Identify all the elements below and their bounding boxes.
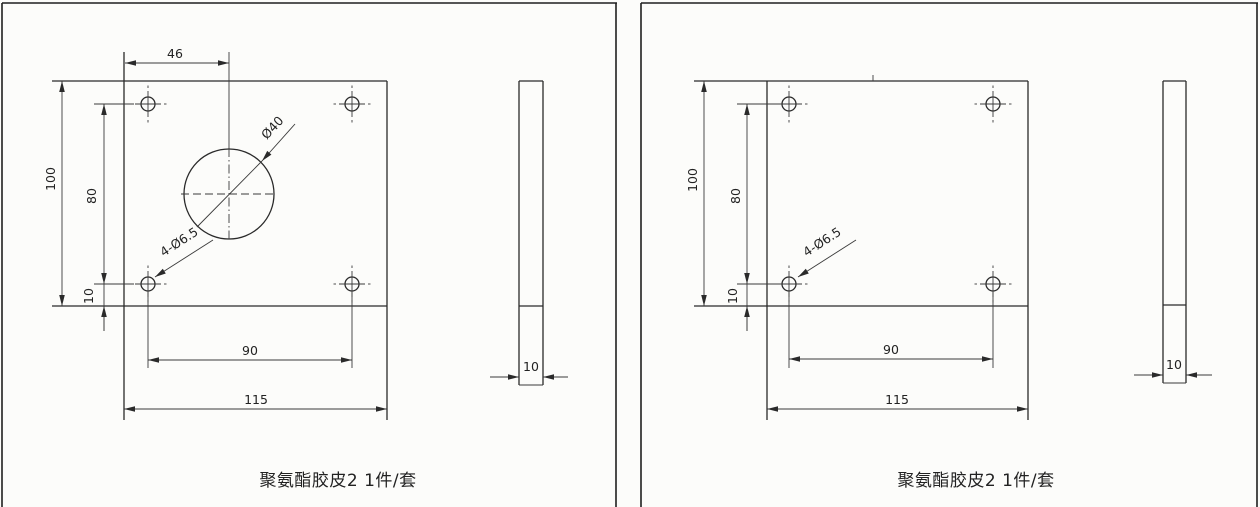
thickness-label: 10	[1166, 357, 1182, 372]
dimensions-front: 100 80 10 4-Ø6.5 90 115	[685, 81, 1028, 409]
part-caption: 聚氨酯胶皮2 1件/套	[897, 471, 1054, 491]
dim-top-offset-label: 46	[167, 46, 183, 61]
drawing-canvas: 46 100 80 10 Ø40 4-Ø6.5 90	[0, 0, 1260, 507]
left-panel: 46 100 80 10 Ø40 4-Ø6.5 90	[2, 3, 617, 507]
dim-height-label: 100	[43, 167, 58, 191]
dimensions-front: 46 100 80 10 Ø40 4-Ø6.5 90	[43, 46, 387, 409]
corner-hole	[975, 86, 1012, 123]
panel-border	[641, 3, 1258, 507]
plate-side-view: 10	[490, 81, 568, 385]
dim-hole-span-h-label: 90	[883, 342, 899, 357]
corner-holes-label: 4-Ø6.5	[800, 224, 844, 260]
corner-hole	[334, 86, 371, 123]
plate-front-view	[52, 52, 387, 420]
dim-hole-span-h-label: 90	[242, 343, 258, 358]
right-panel: 100 80 10 4-Ø6.5 90 115	[641, 3, 1258, 507]
dim-width-label: 115	[244, 392, 268, 407]
dim-hole-span-v-label: 80	[84, 188, 99, 204]
plate-side-view: 10	[1134, 81, 1212, 383]
panel-border	[2, 3, 617, 507]
dim-height-label: 100	[685, 168, 700, 192]
drawing-sheet: 46 100 80 10 Ø40 4-Ø6.5 90	[0, 0, 1260, 507]
dim-hole-span-v-label: 80	[728, 188, 743, 204]
corner-holes-label: 4-Ø6.5	[157, 224, 201, 260]
dim-bottom-offset-label: 10	[725, 288, 740, 304]
dim-bottom-offset-label: 10	[81, 288, 96, 304]
corner-hole	[130, 86, 167, 123]
dim-width-label: 115	[885, 392, 909, 407]
thickness-label: 10	[523, 359, 539, 374]
plate-front-view	[694, 75, 1028, 420]
part-caption: 聚氨酯胶皮2 1件/套	[259, 471, 416, 491]
